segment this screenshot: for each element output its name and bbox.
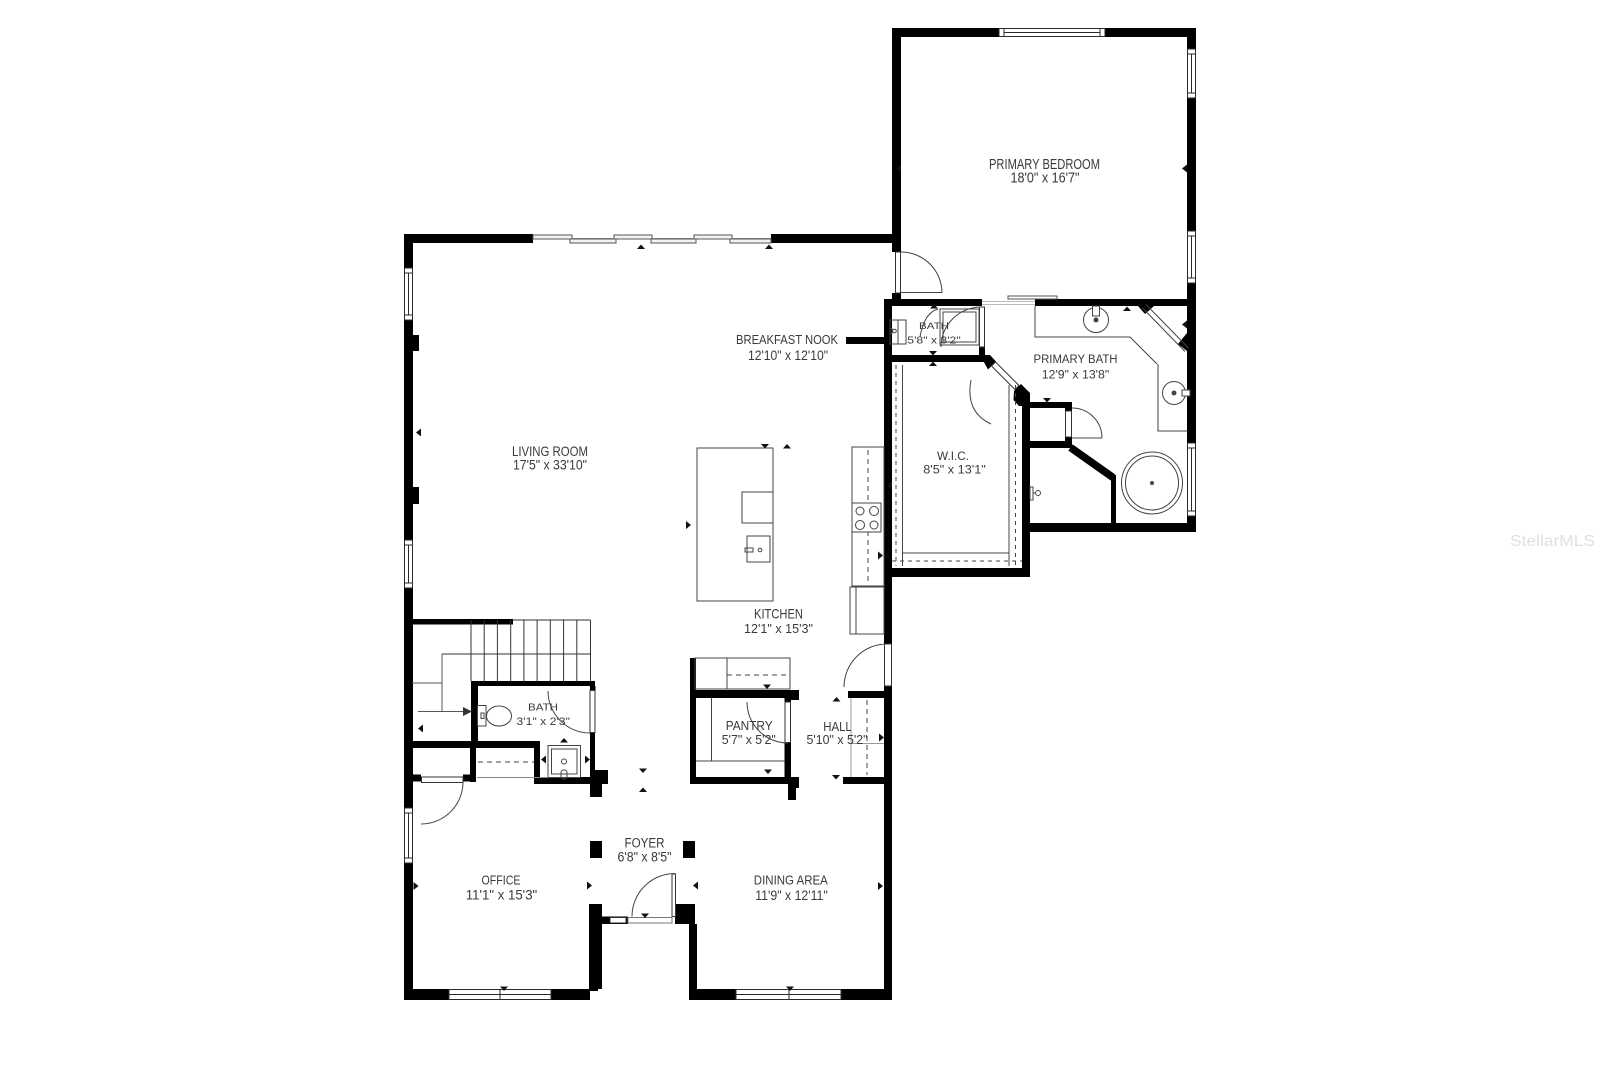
svg-text:5'10" x 5'2": 5'10" x 5'2" <box>807 732 868 747</box>
svg-text:KITCHEN: KITCHEN <box>754 606 803 622</box>
svg-text:BATH: BATH <box>919 321 949 332</box>
svg-text:3'1" x 2'3": 3'1" x 2'3" <box>516 716 570 728</box>
svg-text:DINING AREA: DINING AREA <box>754 874 829 888</box>
svg-text:FOYER: FOYER <box>625 835 665 850</box>
svg-text:BREAKFAST NOOK: BREAKFAST NOOK <box>736 332 838 347</box>
svg-text:12'10" x 12'10": 12'10" x 12'10" <box>748 347 828 363</box>
svg-text:11'1" x 15'3": 11'1" x 15'3" <box>466 887 538 902</box>
svg-text:W.I.C.: W.I.C. <box>937 451 969 463</box>
svg-text:12'1" x 15'3": 12'1" x 15'3" <box>744 621 813 636</box>
svg-text:StellarMLS: StellarMLS <box>1510 533 1595 550</box>
svg-text:8'5" x 13'1": 8'5" x 13'1" <box>923 463 986 477</box>
svg-text:PANTRY: PANTRY <box>726 718 773 733</box>
svg-text:PRIMARY BATH: PRIMARY BATH <box>1034 354 1118 366</box>
svg-text:BATH: BATH <box>528 701 558 713</box>
svg-text:11'9" x 12'11": 11'9" x 12'11" <box>755 888 828 903</box>
svg-text:6'8" x 8'5": 6'8" x 8'5" <box>618 850 672 865</box>
svg-text:5'7" x 5'2": 5'7" x 5'2" <box>722 732 776 747</box>
svg-text:12'9" x 13'8": 12'9" x 13'8" <box>1042 369 1110 381</box>
svg-text:OFFICE: OFFICE <box>482 874 521 888</box>
svg-text:17'5" x 33'10": 17'5" x 33'10" <box>513 457 587 473</box>
svg-text:5'8" x 3'2": 5'8" x 3'2" <box>907 335 961 347</box>
svg-text:18'0" x 16'7": 18'0" x 16'7" <box>1011 171 1080 187</box>
